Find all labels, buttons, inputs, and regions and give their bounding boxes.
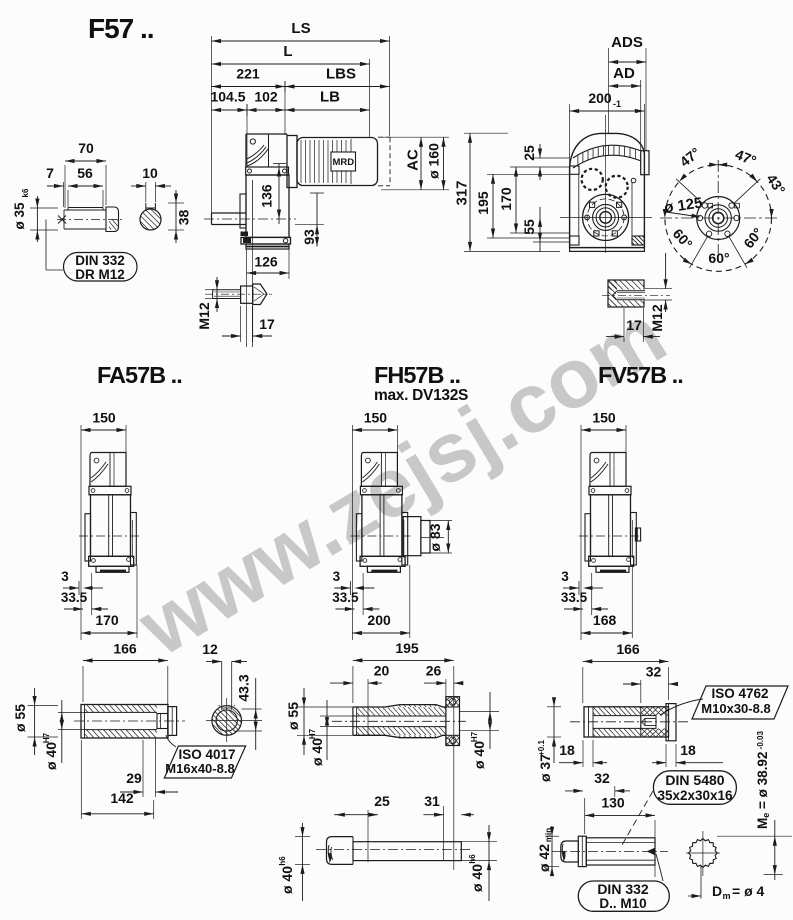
svg-text:LBS: LBS <box>326 66 356 83</box>
svg-text:43.3: 43.3 <box>236 674 252 701</box>
svg-text:L: L <box>283 43 292 60</box>
svg-text:m: m <box>723 891 731 901</box>
svg-text:170: 170 <box>95 612 119 628</box>
svg-text:D.. M10: D.. M10 <box>599 896 646 911</box>
svg-text:130: 130 <box>601 795 625 811</box>
svg-text:LB: LB <box>320 89 340 106</box>
svg-text:38: 38 <box>176 210 192 226</box>
svg-text:31: 31 <box>424 793 440 809</box>
svg-text:25: 25 <box>521 145 537 161</box>
svg-text:DR M12: DR M12 <box>75 267 125 282</box>
svg-text:3: 3 <box>61 569 69 584</box>
svg-text:+0.1: +0.1 <box>537 740 546 756</box>
svg-text:H7: H7 <box>470 731 479 742</box>
svg-text:200: 200 <box>367 612 391 628</box>
svg-text:55: 55 <box>521 219 537 235</box>
svg-text:-1: -1 <box>613 99 621 109</box>
svg-text:221: 221 <box>236 66 260 82</box>
svg-text:56: 56 <box>77 165 93 181</box>
svg-text:150: 150 <box>592 410 616 426</box>
svg-text:ø 160: ø 160 <box>426 143 442 179</box>
svg-text:70: 70 <box>78 140 94 156</box>
svg-text:h6: h6 <box>468 854 477 864</box>
svg-text:ISO 4762: ISO 4762 <box>711 686 768 701</box>
svg-text:H7: H7 <box>42 732 51 743</box>
svg-text:32: 32 <box>646 664 662 680</box>
svg-text:60°: 60° <box>708 250 729 266</box>
svg-text:93: 93 <box>301 229 317 245</box>
svg-text:ø 42: ø 42 <box>536 844 552 872</box>
svg-text:17: 17 <box>626 317 642 333</box>
svg-text:166: 166 <box>113 641 137 657</box>
svg-text:195: 195 <box>395 640 419 656</box>
svg-text:33.5: 33.5 <box>561 590 588 605</box>
svg-text:195: 195 <box>475 191 491 215</box>
svg-text:20: 20 <box>374 663 390 679</box>
svg-text:12: 12 <box>202 641 218 657</box>
svg-text:3: 3 <box>333 569 341 584</box>
svg-text:32: 32 <box>594 770 610 786</box>
svg-text:MRD: MRD <box>332 157 354 168</box>
svg-text:ø 83: ø 83 <box>427 523 443 551</box>
svg-text:142: 142 <box>110 790 134 806</box>
svg-text:7: 7 <box>46 165 54 181</box>
svg-text:35x2x30x16: 35x2x30x16 <box>657 788 733 803</box>
svg-text:ø 35: ø 35 <box>12 202 27 230</box>
svg-text:DIN 332: DIN 332 <box>75 253 125 268</box>
svg-text:DIN 5480: DIN 5480 <box>665 772 724 788</box>
svg-text:170: 170 <box>498 187 514 211</box>
svg-text:10: 10 <box>142 165 158 181</box>
svg-text:AD: AD <box>613 65 635 82</box>
svg-text:H7: H7 <box>308 728 317 739</box>
svg-text:150: 150 <box>364 410 388 426</box>
svg-text:17: 17 <box>259 316 275 332</box>
svg-text:ø 40: ø 40 <box>43 742 59 770</box>
svg-text:M12: M12 <box>196 302 212 329</box>
svg-text:126: 126 <box>254 254 278 270</box>
svg-text:ø 40: ø 40 <box>279 866 295 894</box>
svg-text:3: 3 <box>561 569 569 584</box>
svg-text:29: 29 <box>126 770 142 786</box>
svg-text:M16x40-8.8: M16x40-8.8 <box>165 761 234 776</box>
svg-text:FA57B ..: FA57B .. <box>97 362 182 388</box>
svg-text:200: 200 <box>588 90 612 106</box>
svg-text:26: 26 <box>426 663 442 679</box>
svg-text:25: 25 <box>374 793 390 809</box>
svg-text:ø 40: ø 40 <box>469 864 485 892</box>
svg-text:min: min <box>544 828 553 842</box>
svg-text:33.5: 33.5 <box>332 590 359 605</box>
svg-text:FV57B ..: FV57B .. <box>598 362 683 388</box>
svg-text:ø 55: ø 55 <box>285 702 301 730</box>
svg-text:ISO 4017: ISO 4017 <box>178 747 235 762</box>
svg-text:ADS: ADS <box>611 34 643 51</box>
svg-text:ø 55: ø 55 <box>12 704 28 732</box>
svg-text:ø 40: ø 40 <box>471 741 487 769</box>
svg-text:33.5: 33.5 <box>61 590 88 605</box>
svg-text:136: 136 <box>259 184 275 208</box>
svg-text:F57 ..: F57 .. <box>88 13 154 44</box>
svg-text:18: 18 <box>559 742 575 758</box>
svg-text:h6: h6 <box>278 856 287 866</box>
svg-text:18: 18 <box>680 742 696 758</box>
svg-text:166: 166 <box>616 641 640 657</box>
svg-text:150: 150 <box>92 410 116 426</box>
svg-text:ø 40: ø 40 <box>309 738 325 766</box>
svg-text:D: D <box>712 883 722 899</box>
svg-text:168: 168 <box>593 612 617 628</box>
svg-text:AC: AC <box>404 149 421 171</box>
svg-text:317: 317 <box>453 180 470 205</box>
svg-text:max. DV132S: max. DV132S <box>374 387 468 404</box>
svg-text:k6: k6 <box>21 188 30 197</box>
svg-text:104.5: 104.5 <box>210 89 245 105</box>
svg-text:102: 102 <box>254 89 278 105</box>
svg-text:ø 37: ø 37 <box>537 754 553 782</box>
svg-text:M10x30-8.8: M10x30-8.8 <box>701 701 770 716</box>
svg-text:M12: M12 <box>649 304 665 331</box>
svg-text:FH57B ..: FH57B .. <box>374 362 460 388</box>
svg-text:= ø 4: = ø 4 <box>732 883 765 899</box>
svg-text:LS: LS <box>291 20 310 37</box>
svg-text:DIN 332: DIN 332 <box>597 881 649 897</box>
